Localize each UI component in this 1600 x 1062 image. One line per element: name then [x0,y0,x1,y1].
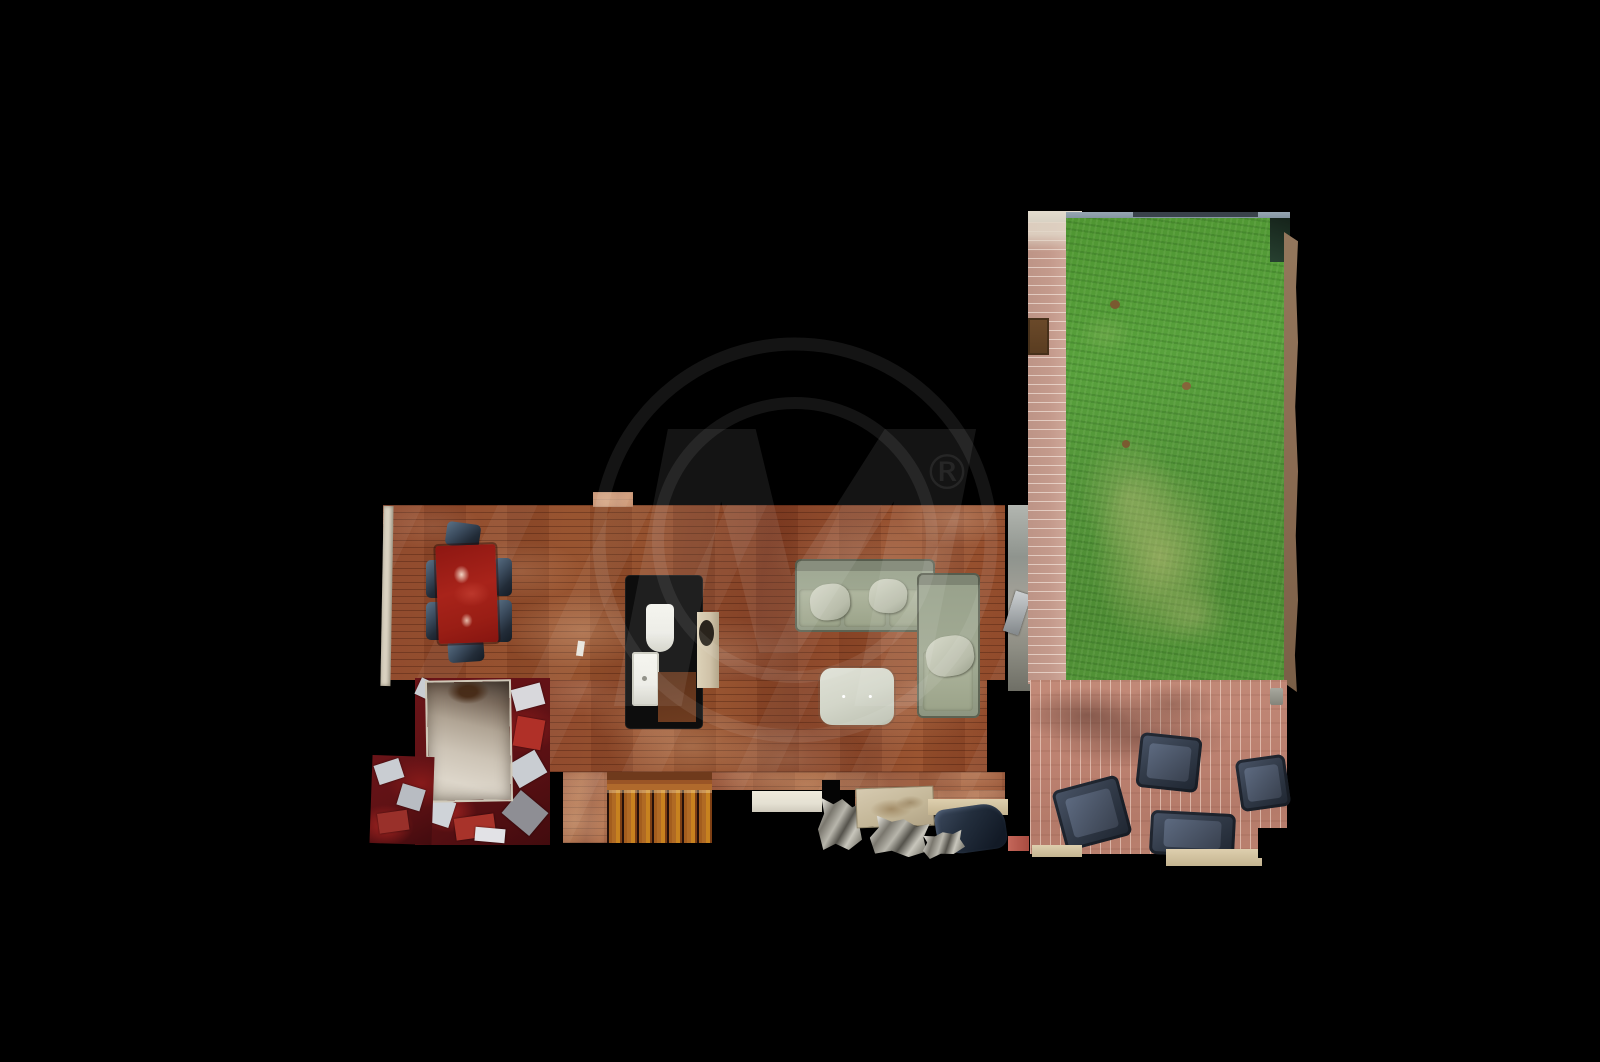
mirror-shard [511,682,546,711]
dining-table [435,544,498,644]
staircase-treads [607,790,712,843]
patio-chair-seat [1244,764,1282,802]
side-dirt-edge [1284,232,1298,692]
stair-landing [607,772,712,792]
powder-room [626,576,702,728]
patio-step-edge [1166,849,1262,866]
fence-rail-dark [1133,212,1258,217]
mirror-shard [474,827,505,844]
lawn-bare-spot [1110,300,1120,309]
lawn-bare-spot [1182,382,1191,390]
foyer-debris-spill [369,755,434,845]
sink-drain [642,676,647,681]
patio-step-edge-left [1032,845,1082,857]
lawn-bare-spot [1122,440,1130,448]
mirror-shard [396,783,425,811]
patio-chair-2 [1235,754,1292,812]
powder-room-door [697,612,719,688]
floor-notch [593,492,633,507]
entry-shoes-pile-1 [818,798,862,850]
mirror-shard [374,758,405,785]
mirror-pane [427,681,511,800]
red-shard [377,810,409,834]
patio-utility-box [1270,688,1283,705]
walkway-doormat [1028,318,1049,355]
door-gap [699,620,714,646]
floorplan-top-view[interactable]: M ® [0,0,1600,1062]
patio-chair-seat [1146,743,1192,782]
lawn [1066,218,1288,682]
toilet [646,604,674,652]
mirrored-foyer [415,678,550,845]
entry-doormat [752,791,825,812]
patio-chair-seat [1065,788,1120,838]
entry-floor-strip [712,772,1005,790]
mirror-shard [507,750,548,789]
ottoman-coffee-table [820,668,894,725]
powder-room-floor [658,672,696,722]
patio-chair-seat [1163,818,1222,849]
stair-side-floor [563,772,608,843]
patio-chair-1 [1135,732,1202,793]
red-shard [513,716,546,750]
registered-trademark-icon: ® [923,445,971,501]
entry-shoes-pile-3 [920,828,966,860]
patio-scan-gap [1258,828,1290,858]
entry-red-scrap [1008,836,1029,851]
